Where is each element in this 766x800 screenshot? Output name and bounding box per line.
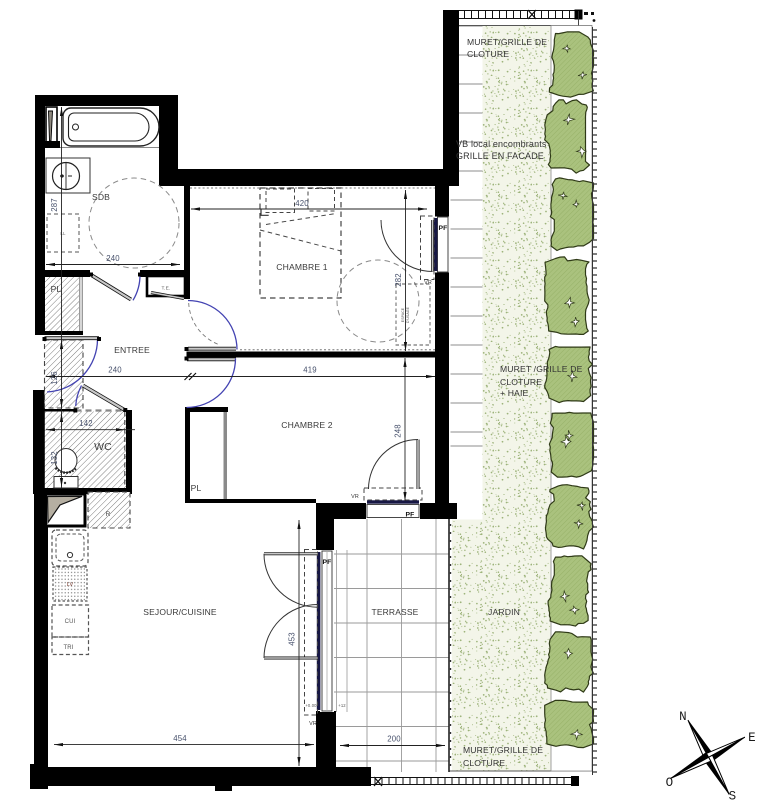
svg-text:MURET/GRILLE DE: MURET/GRILLE DE xyxy=(463,745,543,755)
svg-text:ESPACE: ESPACE xyxy=(401,307,405,322)
svg-text:PF: PF xyxy=(439,225,448,232)
svg-text:142: 142 xyxy=(79,419,92,428)
svg-text:MURET/GRILLE DE: MURET/GRILLE DE xyxy=(467,37,547,47)
svg-text:VR: VR xyxy=(351,494,359,500)
svg-text:SEJOUR/CUISINE: SEJOUR/CUISINE xyxy=(143,607,217,617)
svg-text:VR: VR xyxy=(309,721,317,727)
svg-text:S: S xyxy=(729,790,737,800)
svg-text:287: 287 xyxy=(50,198,59,211)
svg-text:WC: WC xyxy=(94,441,112,453)
svg-text:+12: +12 xyxy=(338,703,346,708)
svg-text:T.E.: T.E. xyxy=(161,286,170,292)
svg-text:419: 419 xyxy=(303,366,316,375)
svg-text:TERRASSE: TERRASSE xyxy=(371,607,418,617)
svg-text:VB local encombrants: VB local encombrants xyxy=(456,139,547,149)
svg-text:126: 126 xyxy=(50,371,59,384)
svg-text:LV: LV xyxy=(67,582,74,588)
svg-text:ENTREE: ENTREE xyxy=(114,345,150,355)
svg-text:E: E xyxy=(748,731,756,745)
svg-text:PL: PL xyxy=(51,284,62,294)
svg-text:132: 132 xyxy=(50,451,59,464)
svg-text:+ HAIE: + HAIE xyxy=(500,388,528,398)
svg-text:454: 454 xyxy=(173,734,187,743)
svg-text:CLOTURE: CLOTURE xyxy=(500,377,542,387)
svg-text:CUI: CUI xyxy=(65,619,76,625)
svg-text:R: R xyxy=(106,511,111,518)
svg-text:+0.00: +0.00 xyxy=(305,703,317,708)
svg-text:PL: PL xyxy=(191,483,202,493)
svg-text:PF: PF xyxy=(406,512,415,519)
svg-text:CHAMBRE 2: CHAMBRE 2 xyxy=(281,420,333,430)
svg-text:TRI: TRI xyxy=(63,645,73,651)
svg-text:PF: PF xyxy=(323,559,332,566)
svg-text:CHAMBRE 1: CHAMBRE 1 xyxy=(276,262,328,272)
svg-text:N: N xyxy=(679,710,687,724)
svg-text:CLOTURE: CLOTURE xyxy=(463,758,505,768)
svg-text:282: 282 xyxy=(394,273,403,286)
svg-text:D'USAGE: D'USAGE xyxy=(406,306,410,323)
svg-text:JARDIN: JARDIN xyxy=(488,607,520,617)
svg-text:CLOTURE: CLOTURE xyxy=(467,49,509,59)
svg-text:420: 420 xyxy=(295,199,309,208)
svg-text:453: 453 xyxy=(288,632,297,645)
svg-text:MURET /GRILLE DE: MURET /GRILLE DE xyxy=(500,364,583,374)
svg-text:240: 240 xyxy=(108,366,122,375)
svg-text:240: 240 xyxy=(106,254,120,263)
svg-text:VR: VR xyxy=(424,280,432,286)
svg-text:200: 200 xyxy=(387,735,401,744)
svg-text:248: 248 xyxy=(394,424,403,437)
svg-text:SDB: SDB xyxy=(92,192,110,202)
svg-text:GRILLE EN FACADE: GRILLE EN FACADE xyxy=(456,151,544,161)
svg-text:O: O xyxy=(666,776,674,790)
